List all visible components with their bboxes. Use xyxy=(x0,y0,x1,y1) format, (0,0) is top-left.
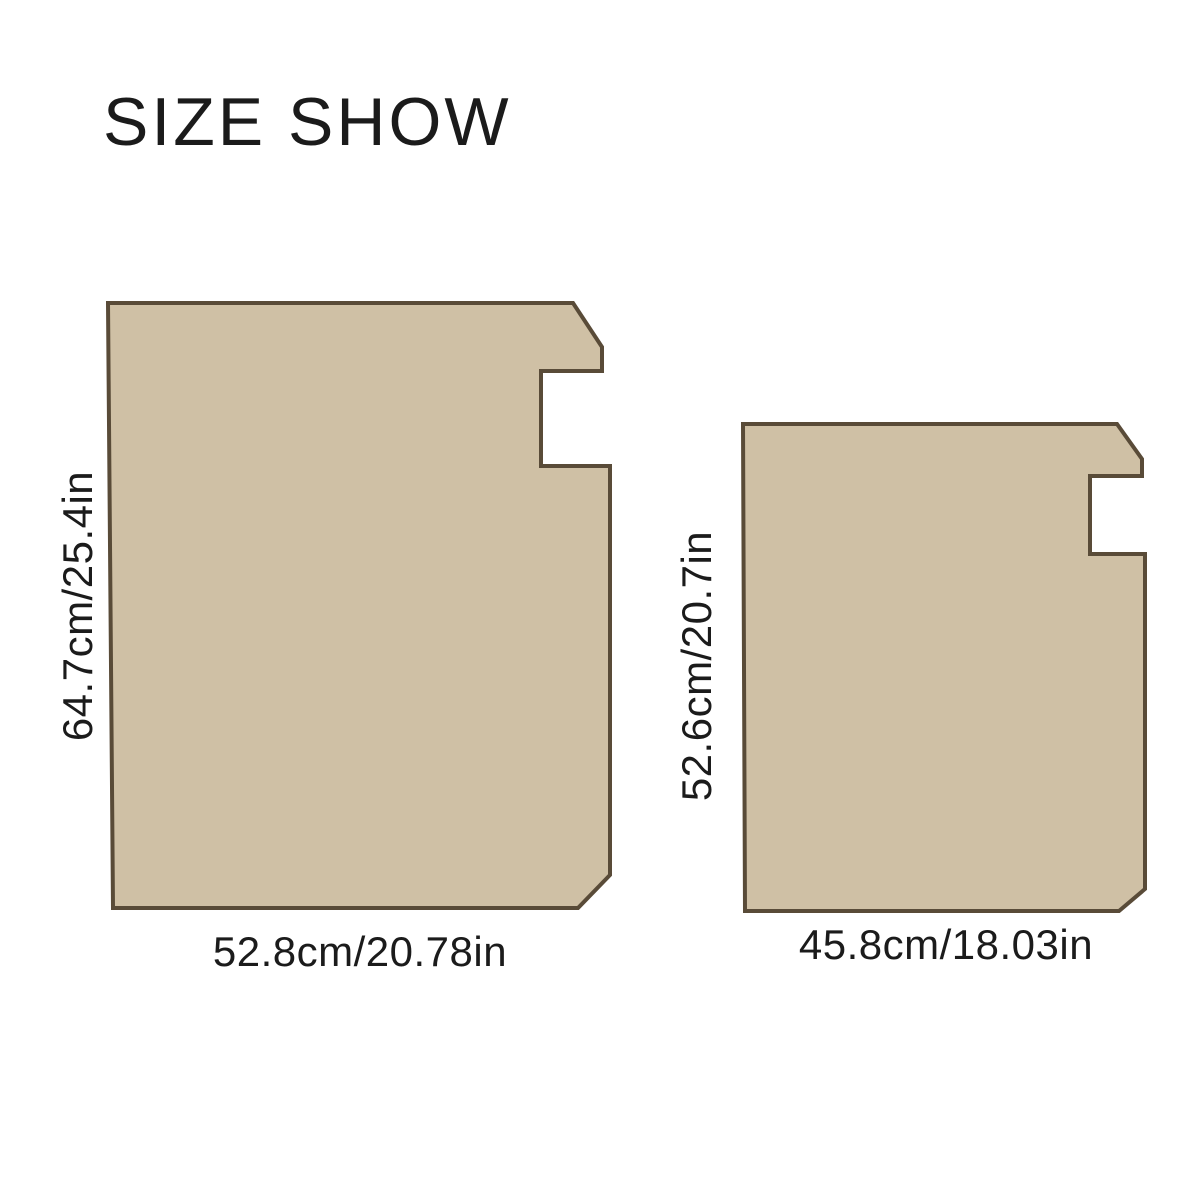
size-diagram-canvas: SIZE SHOW 64.7cm/25.4in 52.8cm/20.78in 5… xyxy=(0,0,1200,1200)
large-mat-height-label: 64.7cm/25.4in xyxy=(54,386,102,826)
large-mat-width-label: 52.8cm/20.78in xyxy=(110,928,610,976)
mats-figure xyxy=(0,0,1200,1200)
small-mat-width-label: 45.8cm/18.03in xyxy=(696,921,1196,969)
large-mat-shape xyxy=(108,303,610,908)
small-mat-shape xyxy=(743,424,1145,911)
small-mat-height-label: 52.6cm/20.7in xyxy=(673,446,721,886)
